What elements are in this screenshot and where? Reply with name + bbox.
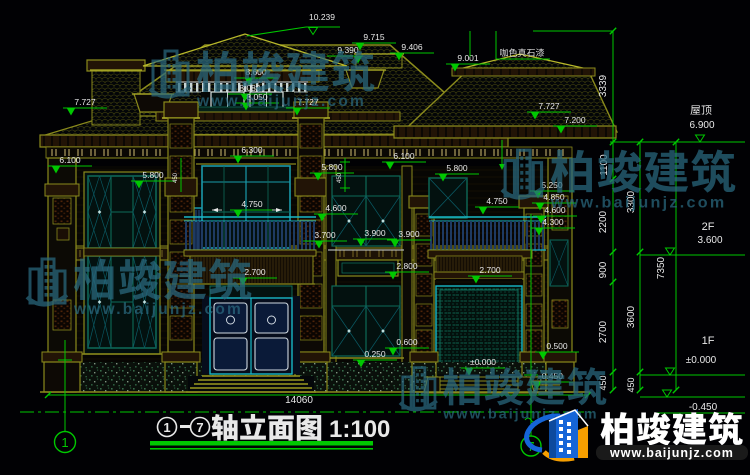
svg-text:1: 1 xyxy=(61,435,68,450)
svg-text:6.900: 6.900 xyxy=(689,120,714,131)
svg-text:1: 1 xyxy=(163,420,170,435)
svg-text:14060: 14060 xyxy=(285,395,313,406)
svg-text:7: 7 xyxy=(196,420,203,435)
svg-text:5.800: 5.800 xyxy=(321,162,343,172)
svg-text:6.100: 6.100 xyxy=(59,155,81,165)
svg-text:3339: 3339 xyxy=(598,74,609,97)
svg-text:5.800: 5.800 xyxy=(446,163,468,173)
svg-text:2.700: 2.700 xyxy=(244,267,266,277)
svg-text:2.700: 2.700 xyxy=(479,265,501,275)
svg-text:3600: 3600 xyxy=(626,305,637,328)
svg-text:4.300: 4.300 xyxy=(542,217,564,227)
svg-text:5.800: 5.800 xyxy=(142,170,164,180)
svg-text:4.750: 4.750 xyxy=(241,199,263,209)
svg-text:±0.000: ±0.000 xyxy=(470,357,496,367)
svg-text:-0.450: -0.450 xyxy=(689,402,718,413)
svg-text:www.baijunjz.com: www.baijunjz.com xyxy=(550,193,727,211)
svg-text:4.750: 4.750 xyxy=(486,196,508,206)
svg-text:1F: 1F xyxy=(702,335,715,347)
svg-text:900: 900 xyxy=(598,261,609,278)
svg-text:7.727: 7.727 xyxy=(74,97,96,107)
svg-text:3.700: 3.700 xyxy=(314,230,336,240)
svg-text:450: 450 xyxy=(626,377,636,392)
svg-text:1:100: 1:100 xyxy=(329,416,390,443)
svg-text:9.406: 9.406 xyxy=(401,42,423,52)
svg-text:www.baijunjz.com: www.baijunjz.com xyxy=(196,93,366,110)
svg-text:4.600: 4.600 xyxy=(325,203,347,213)
svg-text:7.727: 7.727 xyxy=(538,101,560,111)
svg-text:2F: 2F xyxy=(702,221,715,233)
svg-text:2700: 2700 xyxy=(598,320,609,343)
svg-text:0.500: 0.500 xyxy=(546,341,568,351)
svg-text:7.200: 7.200 xyxy=(564,115,586,125)
svg-text:450: 450 xyxy=(337,172,343,183)
svg-text:2.800: 2.800 xyxy=(396,261,418,271)
svg-text:3.600: 3.600 xyxy=(697,235,722,246)
svg-text:www.baijunjz.com: www.baijunjz.com xyxy=(73,301,243,318)
svg-text:450: 450 xyxy=(173,172,179,183)
svg-text:9.001: 9.001 xyxy=(457,53,479,63)
svg-text:6.300: 6.300 xyxy=(241,145,263,155)
svg-text:3.900: 3.900 xyxy=(364,228,386,238)
svg-text:9.715: 9.715 xyxy=(363,32,385,42)
svg-text:±0.000: ±0.000 xyxy=(686,355,717,366)
svg-text:7350: 7350 xyxy=(656,256,667,279)
svg-text:www.baijunjz.com: www.baijunjz.com xyxy=(609,446,734,460)
svg-text:0.600: 0.600 xyxy=(396,337,418,347)
svg-text:0.250: 0.250 xyxy=(364,349,386,359)
svg-text:10.239: 10.239 xyxy=(309,12,335,22)
svg-text:2200: 2200 xyxy=(598,210,609,233)
svg-text:3.900: 3.900 xyxy=(398,229,420,239)
svg-text:6.100: 6.100 xyxy=(393,151,415,161)
